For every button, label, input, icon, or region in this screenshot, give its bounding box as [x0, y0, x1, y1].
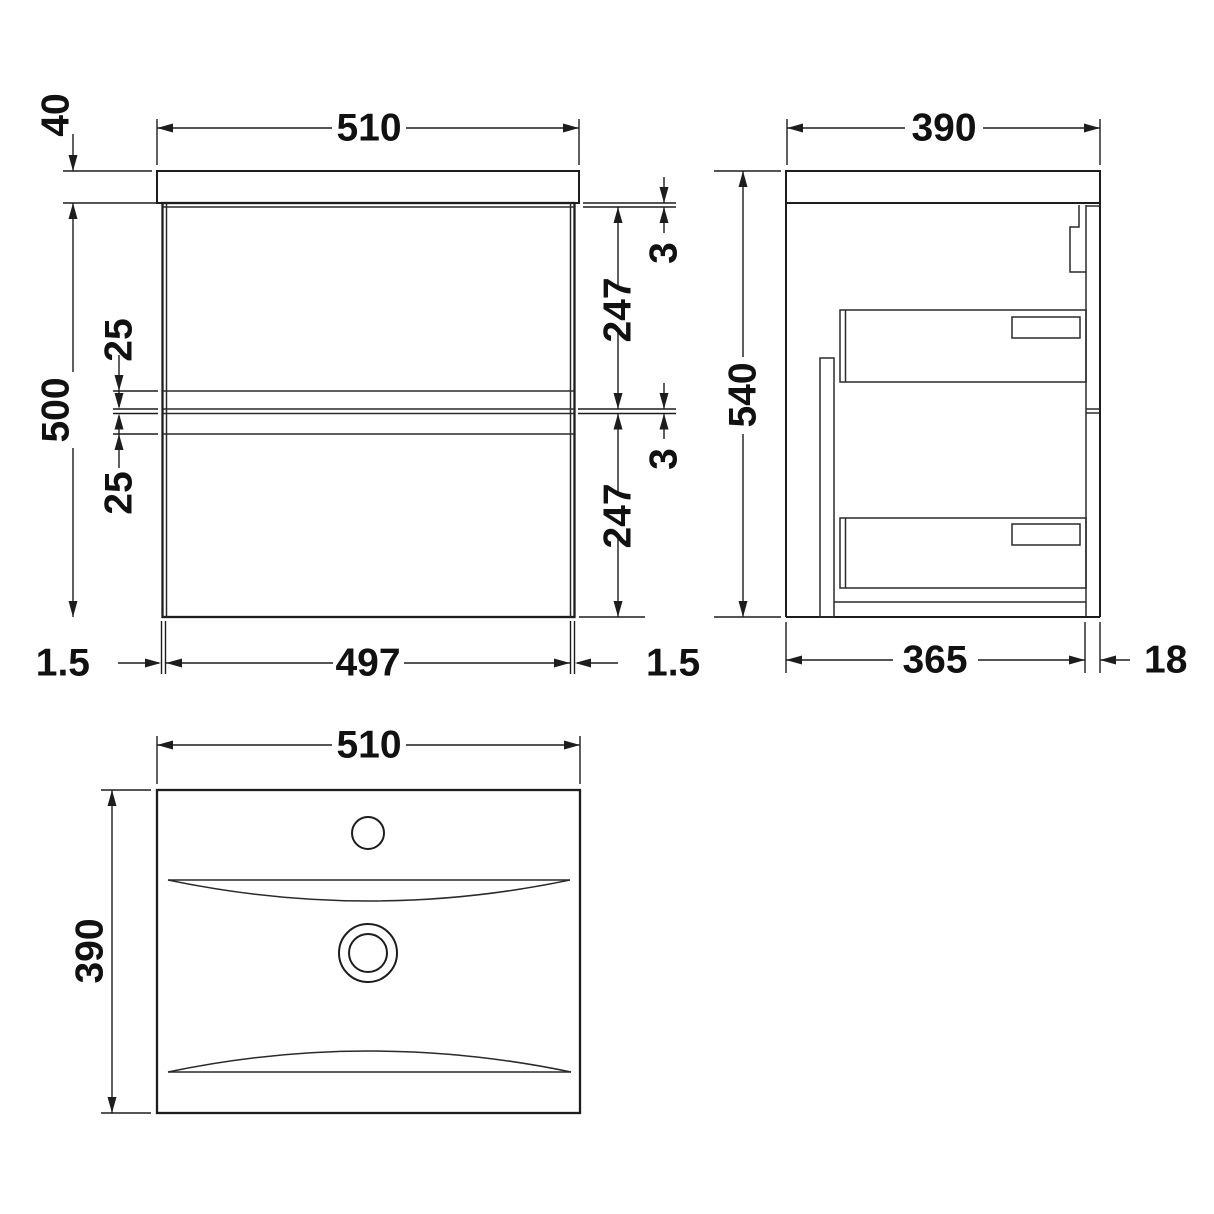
dim-label: 1.5: [646, 642, 700, 685]
dim-label: 510: [336, 107, 401, 150]
dim-label: 497: [335, 642, 400, 685]
dim-label: 365: [902, 639, 967, 682]
dim-label: 247: [597, 277, 640, 342]
canvas-background: [0, 0, 1214, 1214]
dim-label: 3: [643, 242, 686, 264]
dim-label: 500: [35, 377, 78, 442]
dim-label: 540: [722, 362, 765, 427]
dim-label: 247: [597, 483, 640, 548]
dim-label: 1.5: [36, 642, 90, 685]
dim-label: 510: [336, 724, 401, 767]
dim-label: 390: [911, 107, 976, 150]
dim-label: 40: [35, 93, 78, 136]
dim-label: 3: [643, 448, 686, 470]
vanity-technical-drawing: 510 40 500 25: [0, 0, 1214, 1214]
dim-label: 25: [98, 318, 141, 361]
dim-label: 390: [69, 918, 112, 983]
dim-label: 18: [1144, 639, 1187, 682]
dim-label: 25: [98, 471, 141, 514]
